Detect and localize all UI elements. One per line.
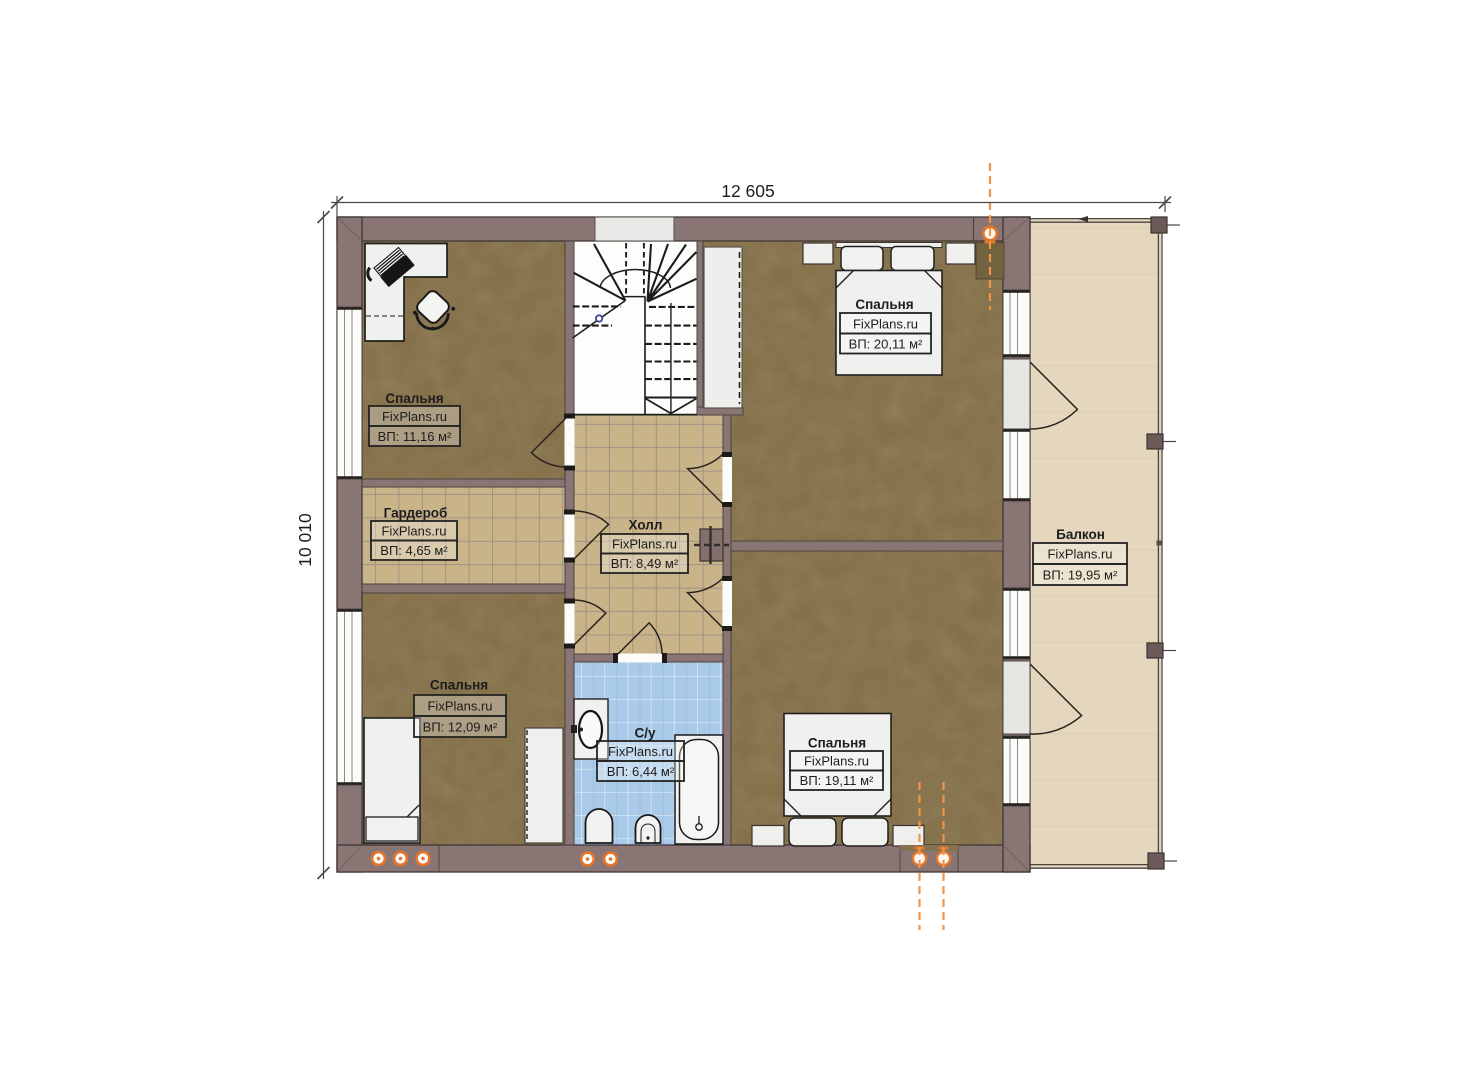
- svg-text:FixPlans.ru: FixPlans.ru: [608, 744, 673, 759]
- svg-text:ВП: 6,44 м²: ВП: 6,44 м²: [607, 764, 675, 779]
- svg-text:Спальня: Спальня: [430, 678, 488, 693]
- svg-text:Гардероб: Гардероб: [384, 506, 448, 521]
- svg-text:ВП: 11,16 м²: ВП: 11,16 м²: [378, 429, 452, 444]
- svg-text:ВП: 20,11 м²: ВП: 20,11 м²: [849, 337, 923, 352]
- svg-text:Холл: Холл: [629, 518, 663, 533]
- svg-text:FixPlans.ru: FixPlans.ru: [853, 317, 918, 332]
- svg-text:FixPlans.ru: FixPlans.ru: [804, 754, 869, 769]
- svg-text:ВП: 12,09 м²: ВП: 12,09 м²: [423, 720, 498, 735]
- svg-text:Спальня: Спальня: [808, 736, 866, 751]
- svg-text:12 605: 12 605: [721, 181, 775, 201]
- svg-text:ВП: 19,11 м²: ВП: 19,11 м²: [800, 773, 874, 788]
- svg-text:FixPlans.ru: FixPlans.ru: [1047, 547, 1112, 562]
- svg-text:FixPlans.ru: FixPlans.ru: [427, 699, 492, 714]
- svg-text:Балкон: Балкон: [1056, 527, 1105, 542]
- svg-text:FixPlans.ru: FixPlans.ru: [382, 409, 447, 424]
- svg-text:Спальня: Спальня: [855, 297, 913, 312]
- svg-text:Спальня: Спальня: [385, 391, 443, 406]
- svg-text:FixPlans.ru: FixPlans.ru: [612, 537, 677, 552]
- svg-text:ВП: 8,49 м²: ВП: 8,49 м²: [611, 556, 679, 571]
- svg-text:ВП: 4,65 м²: ВП: 4,65 м²: [380, 543, 448, 558]
- svg-text:FixPlans.ru: FixPlans.ru: [381, 524, 446, 539]
- svg-text:10 010: 10 010: [295, 513, 315, 567]
- svg-text:ВП: 19,95 м²: ВП: 19,95 м²: [1043, 568, 1118, 583]
- svg-text:С/у: С/у: [634, 726, 656, 741]
